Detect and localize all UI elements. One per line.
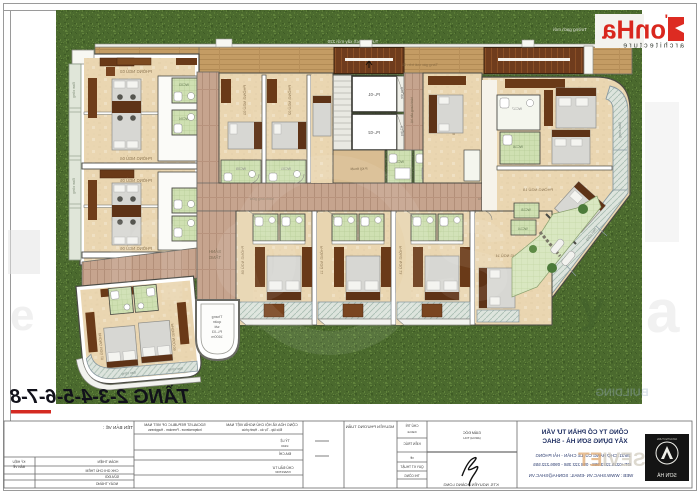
svg-text:1600m: 1600m <box>211 335 223 339</box>
svg-text:Independence - Freedom - Happi: Independence - Freedom - Happiness <box>148 428 202 432</box>
svg-text:QUY KT THUẬT: QUY KT THUẬT <box>400 465 423 469</box>
svg-text:TÊN BẢN VẼ :: TÊN BẢN VẼ : <box>103 423 133 430</box>
svg-text:n: n <box>100 164 192 332</box>
svg-text:Độc lập - Tự do - Hạnh phúc: Độc lập - Tự do - Hạnh phúc <box>241 428 282 432</box>
svg-text:WC17: WC17 <box>512 107 522 111</box>
svg-text:CHỦ TRÌ: CHỦ TRÌ <box>405 423 418 428</box>
svg-text:Ban công: Ban công <box>72 178 76 193</box>
svg-text:WC14: WC14 <box>518 227 528 231</box>
svg-text:hành lang căn hộ: hành lang căn hộ <box>410 97 414 123</box>
svg-text:KIẾN TRÚC: KIẾN TRÚC <box>403 441 421 446</box>
svg-text:BUILDING: BUILDING <box>595 387 648 399</box>
svg-text:PHÒNG NGỦ 13: PHÒNG NGỦ 13 <box>398 246 403 275</box>
svg-text:s: s <box>430 164 513 332</box>
svg-text:NGÀY THÁNG: NGÀY THÁNG <box>95 482 118 486</box>
svg-text:y: y <box>580 283 605 332</box>
svg-text:PL-01: PL-01 <box>368 92 380 97</box>
svg-text:TẦNG 2-3-4-5-6-7-8: TẦNG 2-3-4-5-6-7-8 <box>9 385 190 408</box>
svg-text:PHÒNG NGỦ 03: PHÒNG NGỦ 03 <box>120 69 152 74</box>
svg-text:PL-02: PL-02 <box>368 130 380 135</box>
svg-text:(ARCH) TCH: (ARCH) TCH <box>463 436 480 440</box>
svg-text:thiết kế: thiết kế <box>407 430 416 434</box>
svg-text:e: e <box>10 291 34 340</box>
svg-text:SOCIALIST REPUBLIC OF VIET NAM: SOCIALIST REPUBLIC OF VIET NAM <box>144 423 206 427</box>
svg-text:WEB : WWW.SHAC.VN -EMAIL: SONH: WEB : WWW.SHAC.VN -EMAIL: SONHA@SHAC.VN <box>529 473 633 478</box>
svg-text:HOÀN THIỆN: HOÀN THIỆN <box>97 459 118 464</box>
svg-text:PHÒNG NGỦ 01: PHÒNG NGỦ 01 <box>242 85 247 116</box>
svg-text:WC15: WC15 <box>521 208 531 212</box>
svg-text:CỘNG HÒA XÃ HỘI CHỦ NGHĨA VIỆT: CỘNG HÒA XÃ HỘI CHỦ NGHĨA VIỆT NAM <box>226 422 297 427</box>
svg-text:o: o <box>210 164 302 332</box>
svg-text:PHÒNG NGỦ 02: PHÒNG NGỦ 02 <box>287 85 292 116</box>
svg-text:Gen nhẹ: Gen nhẹ <box>400 87 404 99</box>
svg-text:WC16: WC16 <box>513 145 523 149</box>
svg-text:SƠN HÀ: SƠN HÀ <box>657 472 677 479</box>
svg-text:GIÁM ĐỐC: GIÁM ĐỐC <box>463 430 482 435</box>
svg-text:architecture: architecture <box>621 43 684 50</box>
svg-text:TỶ LỆ: TỶ LỆ <box>280 438 290 443</box>
svg-text:ARCHITECTURE: ARCHITECTURE <box>657 437 678 441</box>
svg-text:KTS. NGUYỄN HOÀNG LONG: KTS. NGUYỄN HOÀNG LONG <box>443 482 498 487</box>
svg-text:XÂY DỰNG SƠN HÀ - SHAC: XÂY DỰNG SƠN HÀ - SHAC <box>542 436 628 445</box>
svg-text:PHÒNG NGỦ 11: PHÒNG NGỦ 11 <box>319 246 324 274</box>
svg-text:Tường gạch mới: Tường gạch mới <box>553 27 587 32</box>
svg-text:PHÒNG NGỦ 04: PHÒNG NGỦ 04 <box>120 156 152 161</box>
svg-text:vẽ: vẽ <box>410 456 414 460</box>
svg-text:1/100: 1/100 <box>281 444 289 448</box>
svg-text:KÝ HIỆU: KÝ HIỆU <box>12 459 25 464</box>
svg-text:WC03: WC03 <box>179 83 189 87</box>
svg-text:INVESTOR: INVESTOR <box>275 470 291 474</box>
svg-text:THI CÔNG: THI CÔNG <box>404 473 420 478</box>
svg-text:SỬA ĐỔI: SỬA ĐỔI <box>105 474 119 479</box>
svg-text:KT.ống: KT.ống <box>400 126 404 136</box>
svg-text:': ' <box>665 11 668 27</box>
svg-text:Ban công: Ban công <box>72 82 76 97</box>
svg-text:Tầng gác mái trên 01: Tầng gác mái trên 01 <box>402 63 438 67</box>
svg-text:a: a <box>646 278 680 345</box>
svg-text:CHK GHI CHÚ THÊM: CHK GHI CHÚ THÊM <box>85 468 118 473</box>
svg-text:ĐIA CHỈ: ĐIA CHỈ <box>279 451 291 456</box>
svg-text:BẢN VẼ: BẢN VẼ <box>13 464 25 469</box>
svg-text:Ban công: Ban công <box>618 122 622 137</box>
svg-text:onHa: onHa <box>601 17 666 45</box>
svg-text:NGUYỄN PHƯƠNG TUẤN: NGUYỄN PHƯƠNG TUẤN <box>346 424 395 429</box>
svg-text:PHÒNG NGỦ 15: PHÒNG NGỦ 15 <box>522 187 553 192</box>
